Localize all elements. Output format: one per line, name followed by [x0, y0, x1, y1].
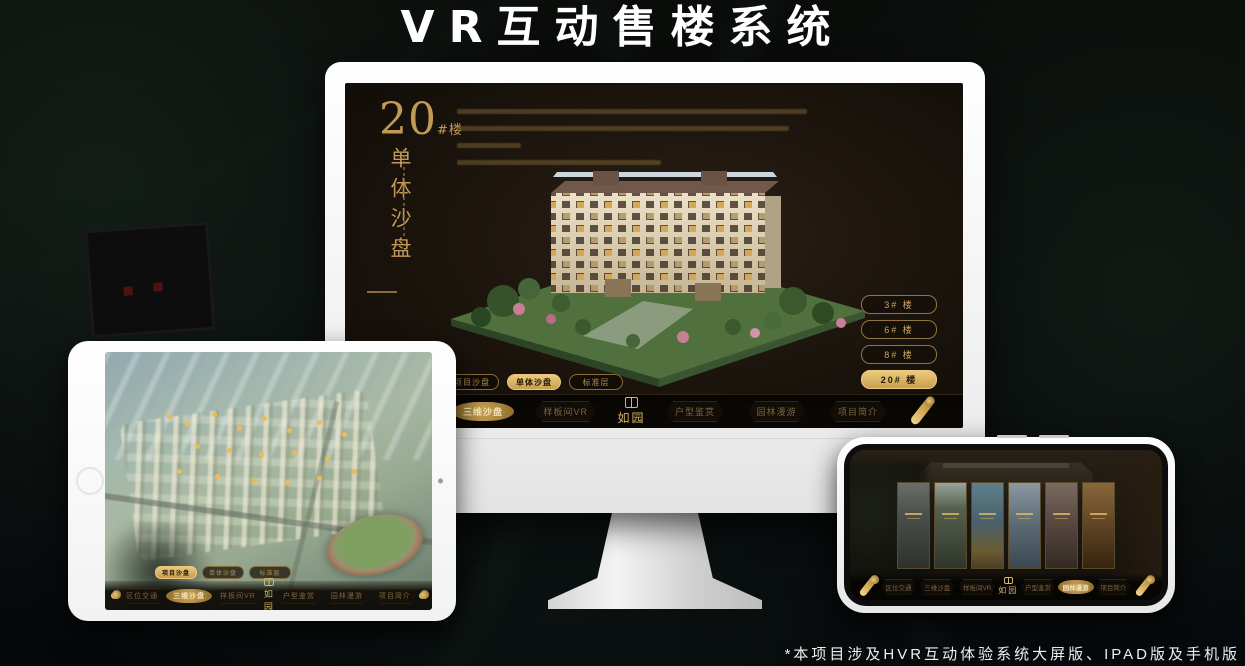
headline-rule: [367, 291, 397, 293]
scene-panel[interactable]: [1008, 482, 1041, 569]
tab-single-sandbox[interactable]: 单体沙盘: [507, 374, 561, 390]
floor-button-6[interactable]: 6# 楼: [861, 320, 937, 339]
scene-panel-gallery: [897, 482, 1115, 569]
background-certificate-frame: [84, 222, 215, 338]
tab-single-sandbox[interactable]: 单体沙盘: [202, 566, 244, 579]
tablet-camera-dot: [438, 479, 443, 484]
tablet-home-button[interactable]: [76, 467, 104, 495]
page-title: VR互动售楼系统: [0, 0, 1245, 58]
nav-item-garden-roam[interactable]: 园林漫游: [1058, 580, 1094, 594]
nav-item-unit-gallery[interactable]: 户型鉴赏: [663, 401, 727, 422]
floor-button-20[interactable]: 20# 楼: [861, 370, 937, 389]
nav-item-3d-sandbox[interactable]: 三维沙盘: [166, 589, 212, 603]
nav-item-garden-roam[interactable]: 园林漫游: [323, 588, 371, 604]
phone-frame: 区位交通 三维沙盘 样板间VR 如园 户型鉴赏 园林漫游 项目简介: [837, 437, 1175, 613]
phone-volume-button: [997, 435, 1027, 438]
nav-item-model-room-vr[interactable]: 样板间VR: [531, 401, 600, 422]
nav-item-project-intro[interactable]: 项目简介: [371, 588, 419, 604]
scene-panel[interactable]: [971, 482, 1004, 569]
ruyuan-logo: 如园: [264, 578, 275, 610]
nav-item-model-room-vr[interactable]: 样板间VR: [957, 579, 998, 595]
nav-item-garden-roam[interactable]: 园林漫游: [744, 401, 808, 422]
building-number-badges: [167, 414, 172, 419]
seal-icon: [264, 578, 274, 586]
nav-item-3d-sandbox[interactable]: 三维沙盘: [452, 402, 514, 421]
scene-panel[interactable]: [897, 482, 930, 569]
seal-icon: [1004, 577, 1013, 584]
scene-panel[interactable]: [1045, 482, 1078, 569]
nav-item-model-room-vr[interactable]: 样板间VR: [212, 588, 264, 604]
scene-panel[interactable]: [1082, 482, 1115, 569]
nav-item-location-traffic[interactable]: 区位交通: [879, 579, 917, 595]
tab-project-sandbox[interactable]: 项目沙盘: [155, 566, 197, 579]
scroll-menu-icon[interactable]: [417, 591, 427, 601]
phone-power-button: [1039, 435, 1069, 438]
monitor-subtabs: 项目沙盘 单体沙盘 标准层: [445, 374, 623, 390]
scroll-menu-icon[interactable]: [858, 576, 877, 598]
building-number: 20: [379, 94, 437, 145]
floor-button-8[interactable]: 8# 楼: [861, 345, 937, 364]
nav-item-unit-gallery[interactable]: 户型鉴赏: [275, 588, 323, 604]
tablet-frame: 项目沙盘 单体沙盘 标准层 区位交通 三维沙盘 样板间VR 如园 户型鉴赏 园林…: [68, 341, 456, 621]
building-render: [433, 151, 878, 391]
scroll-menu-icon[interactable]: [110, 591, 120, 601]
ruyuan-logo: 如园: [617, 397, 645, 426]
floor-button-group: 3# 楼 6# 楼 8# 楼 20# 楼: [861, 295, 937, 389]
tablet-navbar: 区位交通 三维沙盘 样板间VR 如园 户型鉴赏 园林漫游 项目简介: [105, 581, 432, 610]
scroll-menu-icon[interactable]: [910, 397, 936, 426]
footnote-text: *本项目涉及HVR互动体验系统大屏版、IPAD版及手机版: [785, 643, 1240, 664]
phone-screen: 区位交通 三维沙盘 样板间VR 如园 户型鉴赏 园林漫游 项目简介: [850, 450, 1162, 600]
headline-vertical-label: 单体沙盘: [385, 147, 415, 267]
scroll-menu-icon[interactable]: [1135, 576, 1154, 598]
nav-item-project-intro[interactable]: 项目简介: [1094, 579, 1132, 595]
tab-standard-floor[interactable]: 标准层: [569, 374, 623, 390]
nav-item-3d-sandbox[interactable]: 三维沙盘: [918, 579, 956, 595]
seal-icon: [625, 397, 638, 408]
floor-button-3[interactable]: 3# 楼: [861, 295, 937, 314]
nav-item-unit-gallery[interactable]: 户型鉴赏: [1019, 579, 1057, 595]
nav-item-project-intro[interactable]: 项目简介: [826, 401, 890, 422]
phone-navbar: 区位交通 三维沙盘 样板间VR 如园 户型鉴赏 园林漫游 项目简介: [850, 573, 1162, 600]
headline-vertical-subtext: [403, 149, 405, 241]
ruyuan-logo: 如园: [998, 577, 1018, 596]
tablet-screen: 项目沙盘 单体沙盘 标准层 区位交通 三维沙盘 样板间VR 如园 户型鉴赏 园林…: [105, 352, 432, 610]
scene-panel[interactable]: [934, 482, 967, 569]
poster-canvas: VR互动售楼系统 20#楼 单体沙盘: [0, 0, 1245, 666]
nav-item-location-traffic[interactable]: 区位交通: [118, 588, 166, 604]
